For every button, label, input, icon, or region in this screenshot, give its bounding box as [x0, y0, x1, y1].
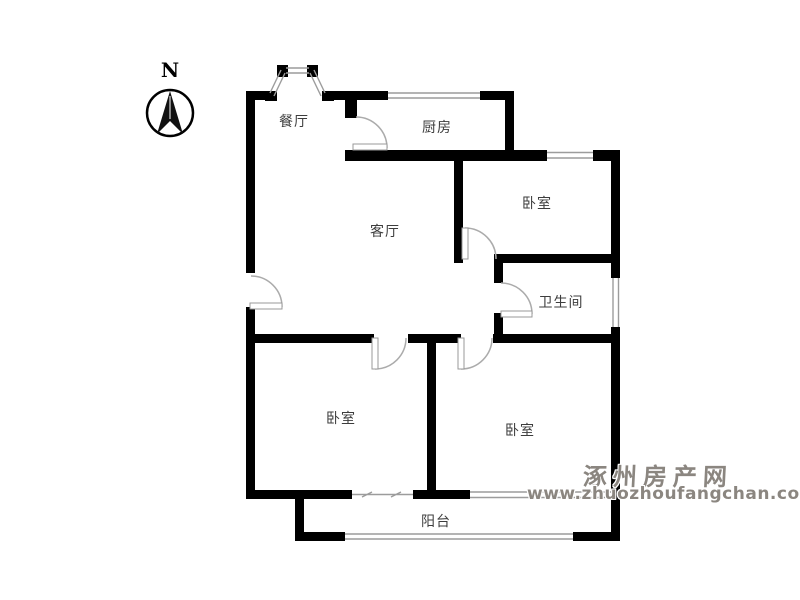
room-label-bathroom: 卫生间: [539, 292, 584, 312]
bathroom-door-leaf: [501, 311, 532, 317]
room-label-kitchen: 厨房: [422, 117, 452, 137]
entrance-door-arc: [251, 276, 282, 307]
bathroom-door-arc: [501, 283, 532, 314]
kitchen-door-arc: [356, 117, 387, 148]
entrance-door-leaf: [250, 303, 282, 309]
floorplan-page: N 餐厅 厨房 卧室 客厅 卫生间 卧室 卧室 阳台 涿州房产网 www.zhu…: [0, 0, 800, 600]
room-label-bedroom-bottom-left: 卧室: [326, 408, 356, 428]
bedroom-bl-door-arc: [375, 338, 406, 369]
bedroom-tr-door-leaf: [462, 228, 468, 259]
watermark-site-url: www.zhuozhoufangchan.com: [527, 484, 800, 504]
compass-north-label: N: [161, 58, 179, 82]
bedroom-tr-door-arc: [465, 228, 496, 259]
bedroom-br-door-arc: [461, 338, 492, 369]
north-compass-icon: [147, 90, 193, 136]
bedroom-bl-door-leaf: [372, 338, 378, 369]
room-label-bedroom-top-right: 卧室: [522, 193, 552, 213]
room-label-dining: 餐厅: [279, 111, 309, 131]
room-label-bedroom-bottom-right: 卧室: [505, 420, 535, 440]
bedroom-br-door-leaf: [458, 338, 464, 369]
kitchen-door-leaf: [353, 144, 387, 150]
floorplan-drawing: [0, 0, 800, 600]
room-label-living: 客厅: [370, 221, 400, 241]
room-label-balcony: 阳台: [421, 511, 451, 531]
